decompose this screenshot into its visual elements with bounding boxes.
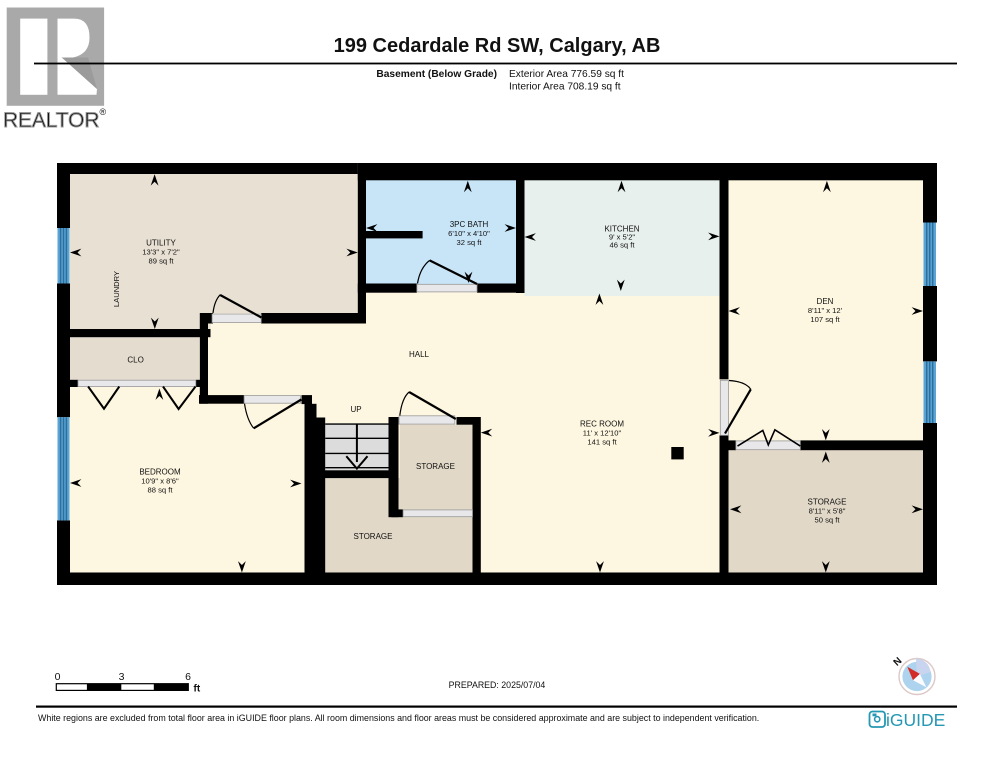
svg-text:32 sq ft: 32 sq ft [457,238,483,247]
svg-text:STORAGE: STORAGE [354,532,393,541]
svg-text:88 sq ft: 88 sq ft [148,486,174,495]
svg-text:3: 3 [119,671,125,683]
svg-text:8'11" x 12': 8'11" x 12' [808,306,843,315]
svg-text:89 sq ft: 89 sq ft [149,257,175,266]
svg-text:Basement (Below Grade): Basement (Below Grade) [376,69,497,80]
svg-text:HALL: HALL [409,350,430,359]
svg-text:0: 0 [55,671,61,683]
svg-text:199 Cedardale Rd SW, Calgary,: 199 Cedardale Rd SW, Calgary, AB [334,35,661,57]
svg-text:REALTOR: REALTOR [3,109,100,132]
svg-text:6'10" x 4'10": 6'10" x 4'10" [448,229,490,238]
svg-text:141 sq ft: 141 sq ft [587,438,617,447]
svg-text:STORAGE: STORAGE [808,498,847,507]
svg-text:UP: UP [350,405,361,414]
svg-text:iGUIDE: iGUIDE [886,710,945,730]
svg-text:6: 6 [185,671,191,683]
svg-text:8'11" x 5'8": 8'11" x 5'8" [809,507,846,516]
svg-text:UTILITY: UTILITY [146,239,176,248]
svg-text:10'9" x 8'6": 10'9" x 8'6" [141,477,179,486]
svg-text:46 sq ft: 46 sq ft [610,241,636,250]
svg-text:13'3" x 7'2": 13'3" x 7'2" [142,248,180,257]
svg-text:Interior Area 708.19 sq ft: Interior Area 708.19 sq ft [509,82,621,93]
svg-text:ft: ft [194,684,201,695]
svg-text:®: ® [100,107,107,117]
svg-text:11' x 12'10": 11' x 12'10" [583,429,622,438]
svg-text:STORAGE: STORAGE [416,462,455,471]
svg-text:White regions are excluded fro: White regions are excluded from total fl… [38,713,759,723]
svg-text:DEN: DEN [817,297,834,306]
svg-text:CLO: CLO [127,356,143,365]
svg-text:PREPARED: 2025/07/04: PREPARED: 2025/07/04 [449,680,546,690]
svg-text:REC ROOM: REC ROOM [580,420,624,429]
svg-text:3PC BATH: 3PC BATH [450,220,489,229]
svg-text:BEDROOM: BEDROOM [139,468,181,477]
svg-text:LAUNDRY: LAUNDRY [112,271,121,307]
svg-text:50 sq ft: 50 sq ft [815,516,841,525]
svg-text:107 sq ft: 107 sq ft [810,315,840,324]
svg-text:Exterior Area 776.59 sq ft: Exterior Area 776.59 sq ft [509,69,624,80]
